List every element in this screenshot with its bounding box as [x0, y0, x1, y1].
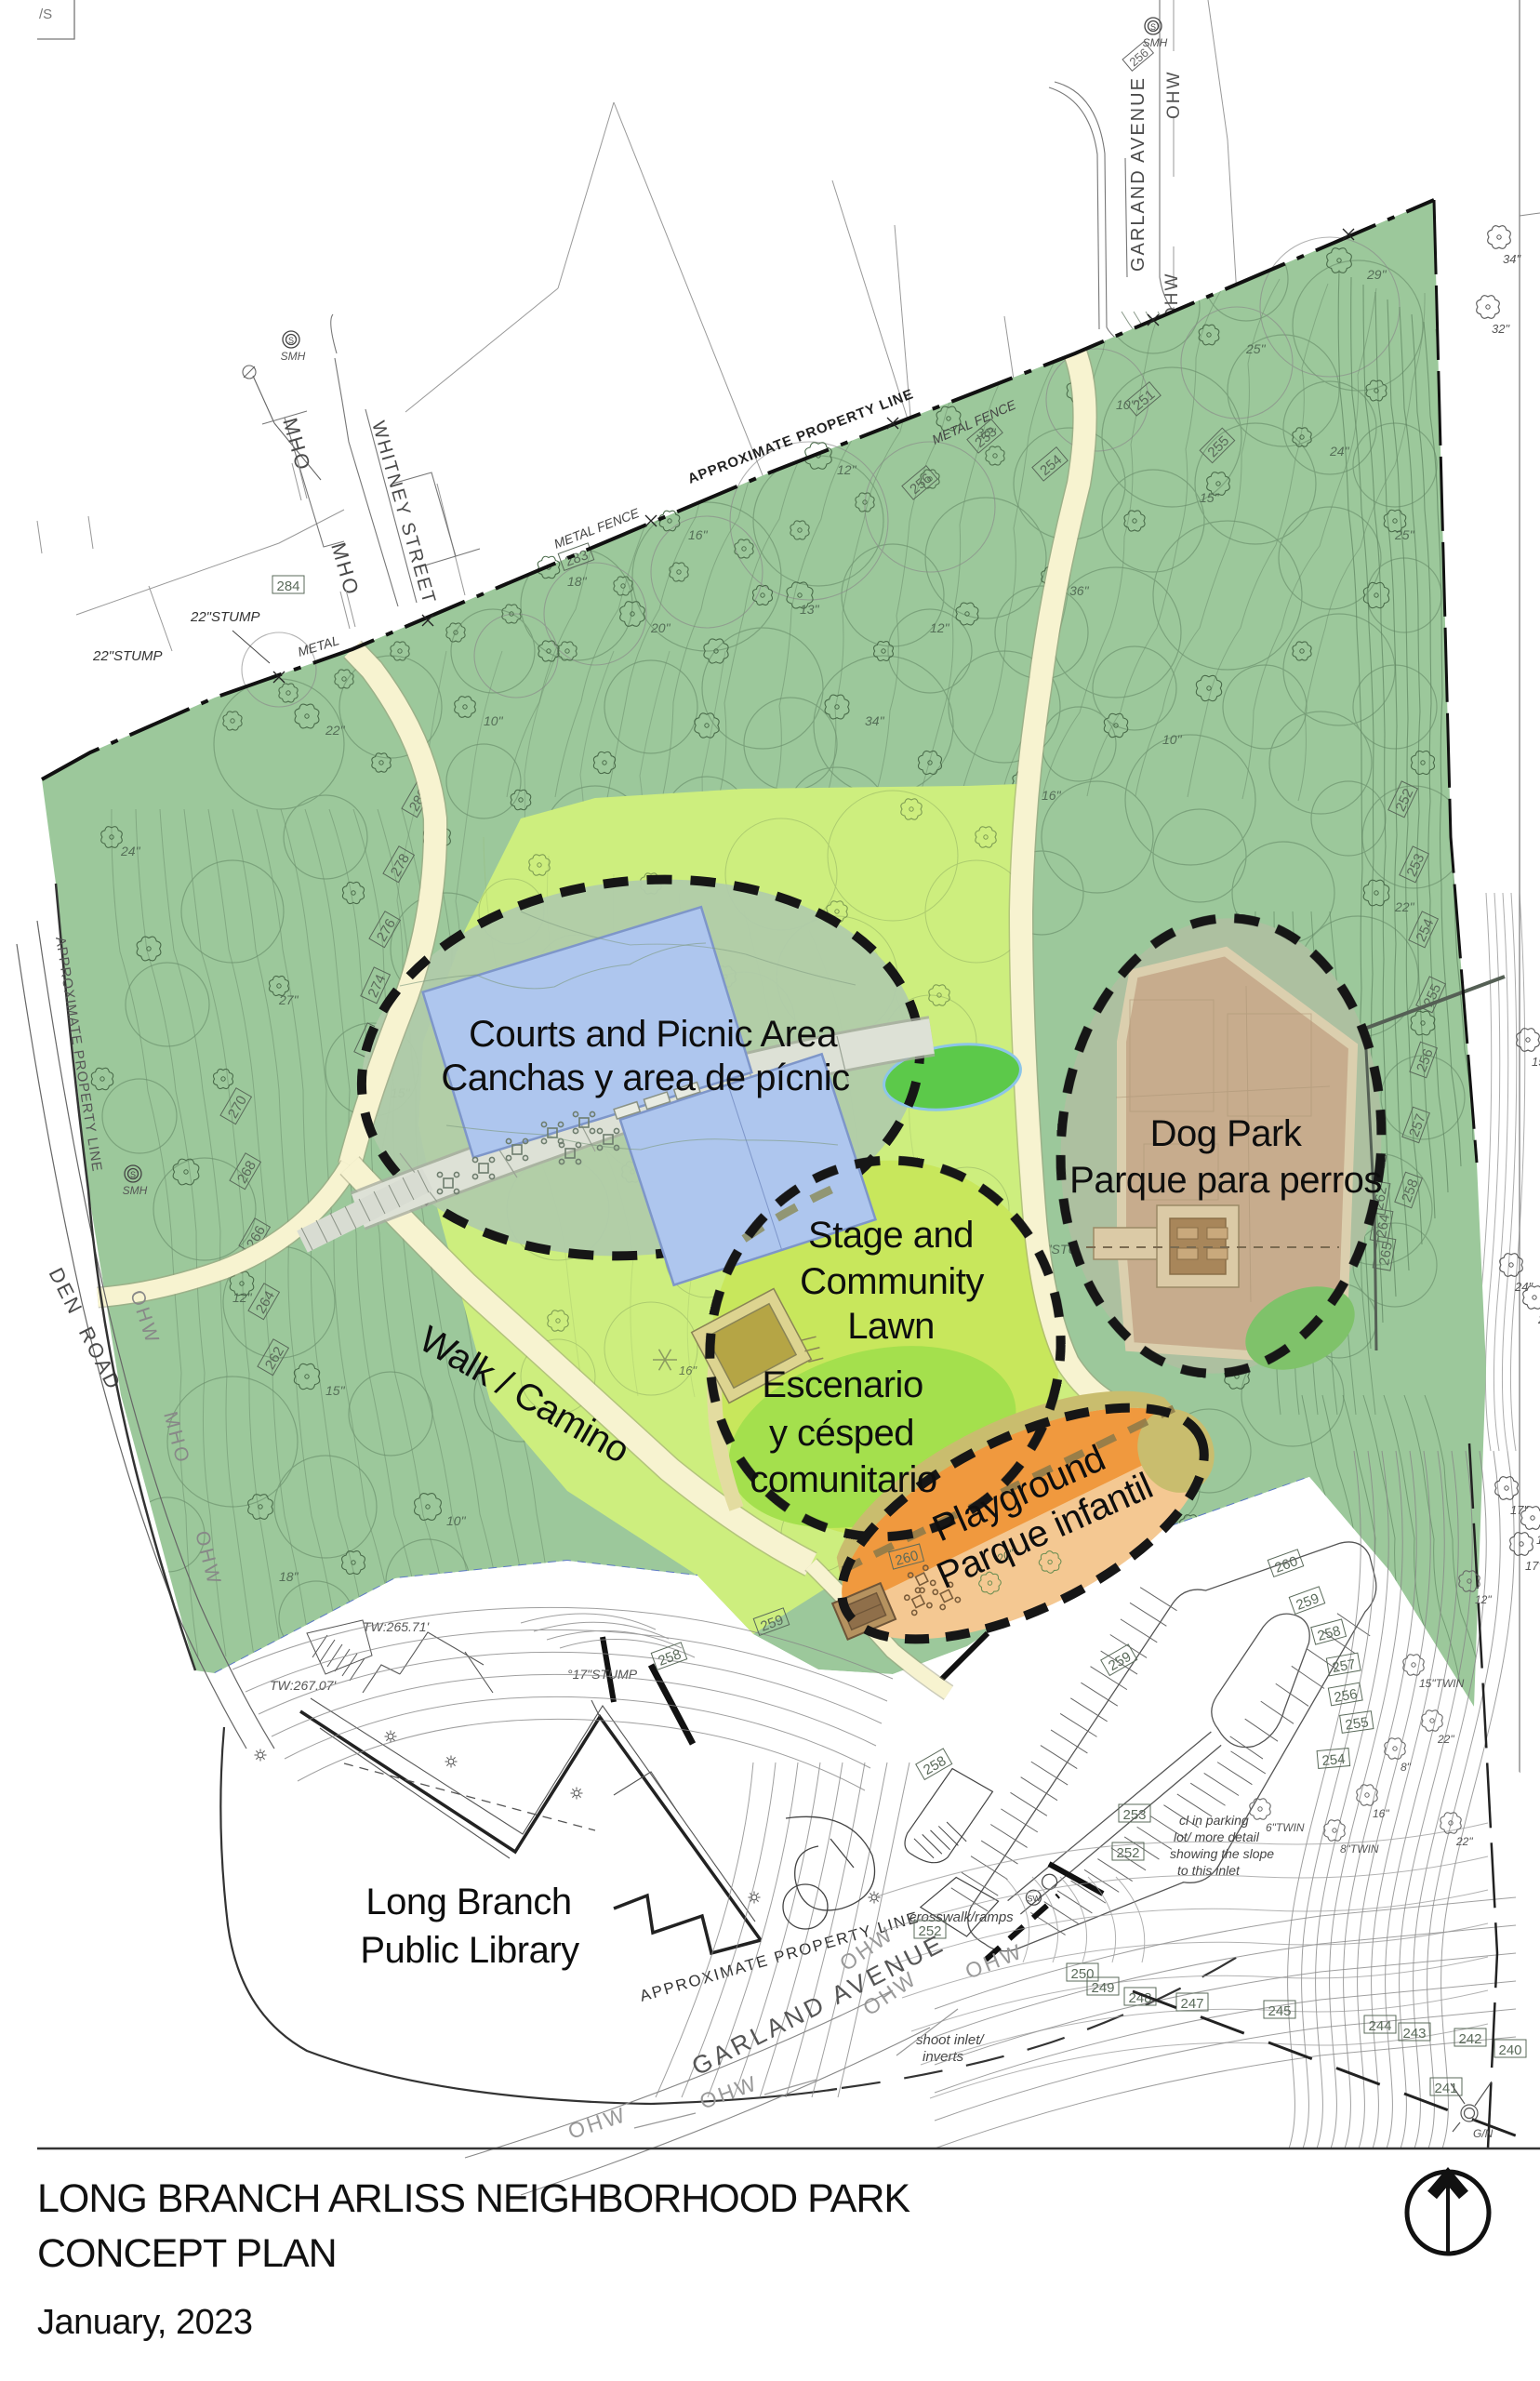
- svg-text:Canchas y area de pícnic: Canchas y area de pícnic: [441, 1057, 849, 1098]
- svg-text:S: S: [130, 1170, 136, 1179]
- svg-text:254: 254: [1321, 1751, 1346, 1769]
- svg-text:S: S: [1150, 22, 1156, 32]
- svg-text:245: 245: [1268, 2003, 1291, 2019]
- svg-text:LONG BRANCH ARLISS NEIGHBORHOO: LONG BRANCH ARLISS NEIGHBORHOOD PARK: [37, 2176, 910, 2221]
- svg-text:/S: /S: [39, 7, 52, 22]
- svg-text:240: 240: [1498, 2042, 1521, 2058]
- svg-text:25": 25": [1245, 341, 1267, 356]
- svg-text:°17"STUMP: °17"STUMP: [567, 1667, 638, 1682]
- svg-text:22": 22": [325, 723, 346, 738]
- svg-text:17": 17": [1525, 1559, 1540, 1573]
- svg-text:15": 15": [325, 1383, 346, 1398]
- svg-text:22": 22": [1394, 899, 1415, 914]
- svg-text:Stage and: Stage and: [808, 1215, 974, 1256]
- svg-text:16": 16": [1373, 1807, 1389, 1820]
- svg-text:10": 10": [1162, 732, 1183, 747]
- svg-text:15": 15": [1200, 490, 1220, 505]
- svg-text:18": 18": [567, 574, 588, 589]
- svg-text:34": 34": [1503, 252, 1521, 266]
- svg-text:22"STUMP: 22"STUMP: [92, 648, 163, 664]
- svg-text:S: S: [288, 336, 294, 345]
- svg-text:CONCEPT PLAN: CONCEPT PLAN: [37, 2231, 337, 2276]
- svg-text:253: 253: [1122, 1807, 1146, 1823]
- svg-text:12": 12": [930, 620, 950, 635]
- svg-text:13": 13": [800, 602, 820, 617]
- svg-text:6"TWIN: 6"TWIN: [1266, 1821, 1305, 1834]
- svg-text:22": 22": [1437, 1733, 1454, 1746]
- svg-text:25": 25": [1394, 527, 1415, 542]
- svg-text:22": 22": [1455, 1835, 1473, 1848]
- svg-text:252: 252: [1116, 1845, 1139, 1861]
- svg-text:TW:267.07': TW:267.07': [270, 1678, 337, 1693]
- svg-text:SMH: SMH: [281, 350, 306, 363]
- svg-text:249: 249: [1091, 1980, 1114, 1996]
- svg-text:284: 284: [276, 579, 299, 594]
- svg-text:Lawn: Lawn: [847, 1306, 935, 1347]
- svg-text:G/N: G/N: [1473, 2127, 1494, 2140]
- svg-text:20": 20": [650, 620, 671, 635]
- svg-text:17": 17": [1536, 1533, 1540, 1547]
- svg-text:SW: SW: [1027, 1894, 1042, 1904]
- svg-text:Escenario: Escenario: [762, 1364, 923, 1405]
- svg-text:243: 243: [1402, 2026, 1426, 2042]
- svg-text:showing the slope: showing the slope: [1170, 1846, 1274, 1861]
- svg-text:comunitario: comunitario: [750, 1459, 936, 1500]
- svg-text:8": 8": [1401, 1761, 1412, 1774]
- svg-text:16": 16": [688, 527, 709, 542]
- svg-text:TW:265.71': TW:265.71': [363, 1619, 430, 1634]
- svg-text:Parque para perros: Parque para perros: [1069, 1160, 1382, 1201]
- svg-text:10": 10": [484, 713, 504, 728]
- svg-text:15"TWIN: 15"TWIN: [1419, 1677, 1465, 1690]
- svg-text:29": 29": [1366, 267, 1387, 282]
- svg-text:242: 242: [1458, 2031, 1481, 2047]
- svg-text:Public Library: Public Library: [360, 1930, 579, 1971]
- svg-text:Community: Community: [800, 1261, 984, 1302]
- svg-text:January, 2023: January, 2023: [37, 2303, 253, 2342]
- svg-text:16": 16": [679, 1363, 697, 1377]
- svg-text:255: 255: [1344, 1714, 1369, 1733]
- svg-text:22"STUMP: 22"STUMP: [190, 609, 260, 625]
- svg-text:16": 16": [1042, 788, 1062, 803]
- svg-text:24": 24": [1329, 444, 1350, 459]
- svg-text:24": 24": [120, 844, 141, 858]
- svg-text:247: 247: [1180, 1996, 1203, 2012]
- svg-text:34": 34": [865, 713, 885, 728]
- svg-text:18": 18": [279, 1569, 299, 1584]
- svg-text:shoot inlet/: shoot inlet/: [916, 2032, 985, 2048]
- svg-text:27": 27": [278, 992, 299, 1007]
- svg-text:12": 12": [837, 462, 857, 477]
- svg-text:Dog Park: Dog Park: [1150, 1113, 1303, 1154]
- svg-text:y césped: y césped: [769, 1413, 914, 1454]
- svg-text:Courts and Picnic Area: Courts and Picnic Area: [469, 1014, 838, 1055]
- svg-text:12": 12": [1475, 1593, 1492, 1606]
- svg-text:OHW: OHW: [1164, 71, 1184, 119]
- svg-text:17": 17": [1510, 1503, 1529, 1517]
- svg-text:12": 12": [232, 1290, 253, 1305]
- svg-text:8"TWIN: 8"TWIN: [1340, 1842, 1379, 1856]
- svg-text:SMH: SMH: [123, 1184, 148, 1197]
- svg-text:36": 36": [1069, 583, 1090, 598]
- svg-text:15": 15": [1532, 1055, 1540, 1069]
- svg-text:Long Branch: Long Branch: [365, 1882, 571, 1922]
- svg-text:cl in parking: cl in parking: [1179, 1813, 1249, 1828]
- svg-text:SMH: SMH: [1143, 36, 1168, 49]
- svg-text:32": 32": [1492, 322, 1510, 336]
- svg-text:GARLAND AVENUE: GARLAND AVENUE: [1128, 76, 1148, 272]
- svg-text:244: 244: [1368, 2018, 1391, 2034]
- svg-text:10": 10": [446, 1513, 467, 1528]
